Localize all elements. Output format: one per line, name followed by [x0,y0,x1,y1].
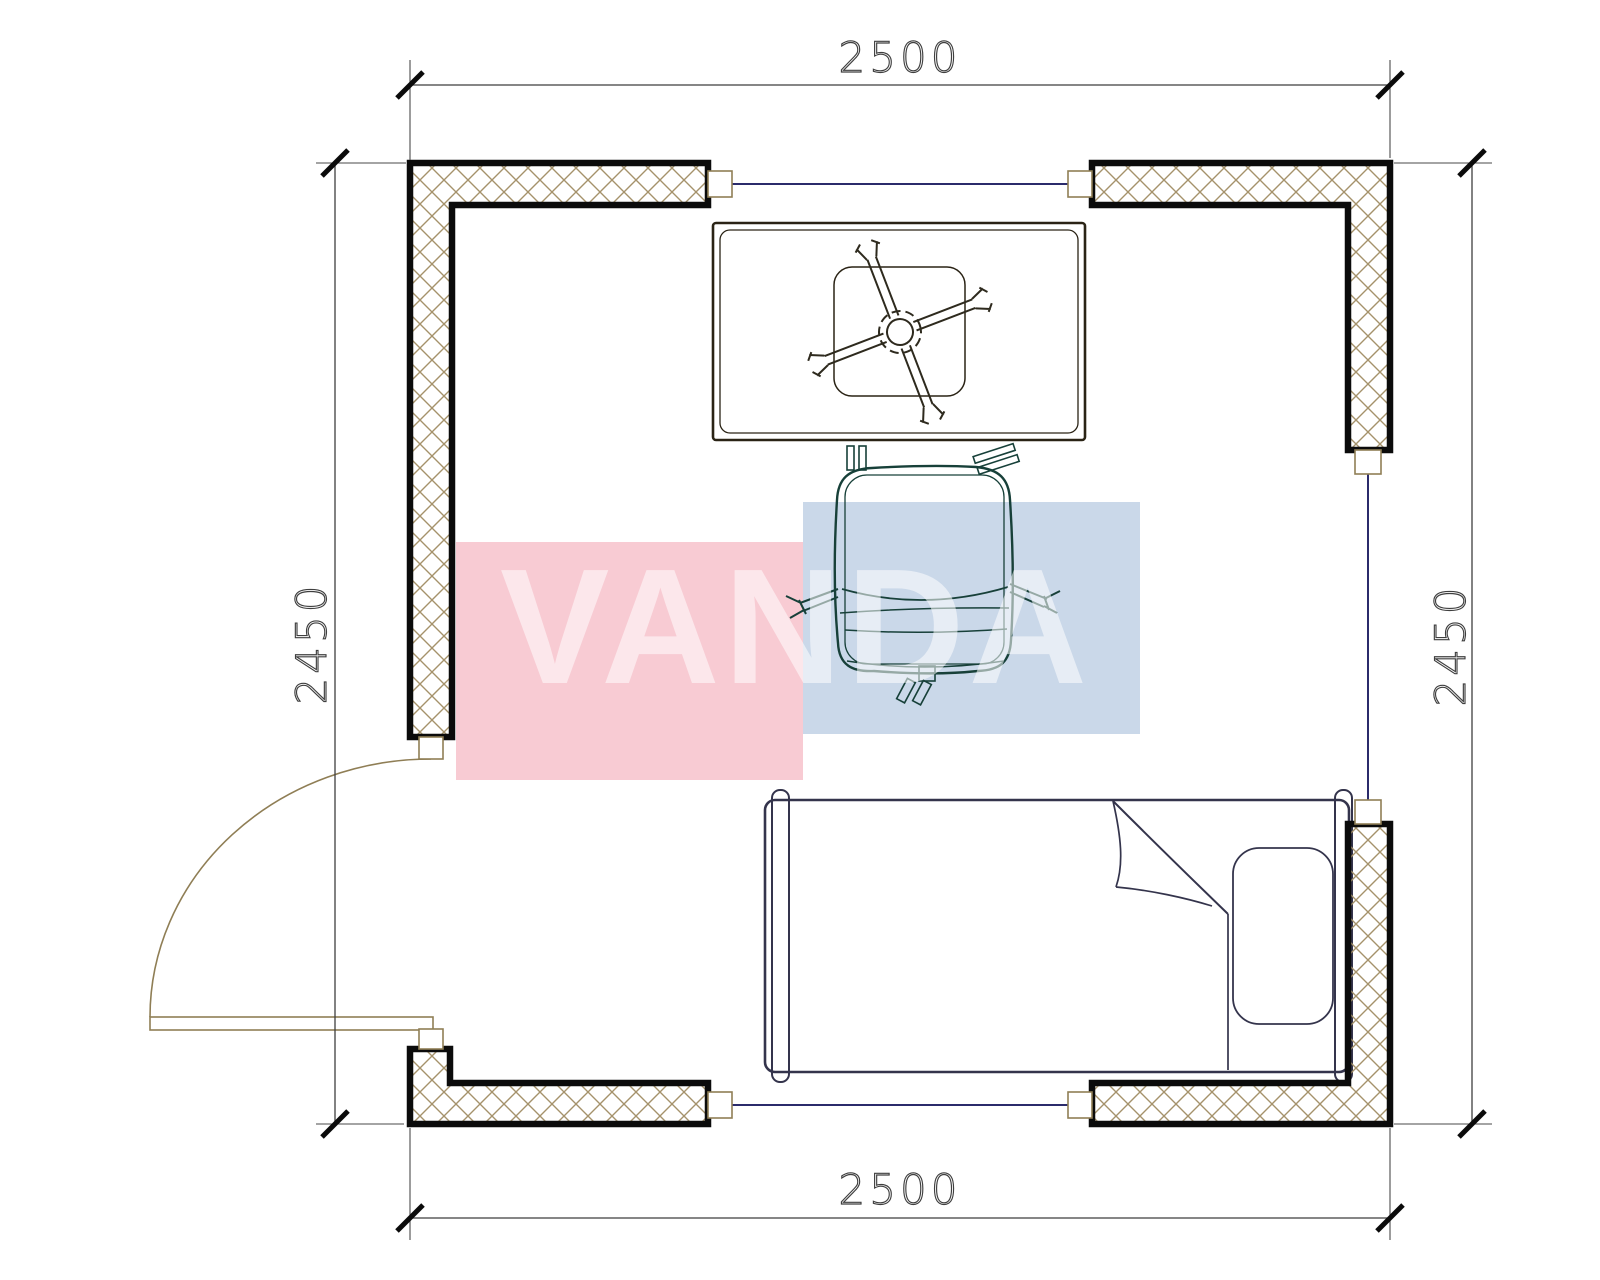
watermark-text: VANDA [500,545,1091,709]
window-bottom-frame-left [708,1092,732,1118]
dimension-label-bottom: 2500 [750,1168,1050,1212]
window-right-frame-top [1355,450,1381,474]
desk-fan-cross [776,208,1024,456]
bed-mattress [765,800,1349,1072]
window-top-frame-left [708,171,732,197]
desk-pad [834,267,965,396]
desk [713,208,1085,456]
dimension-label-top: 2500 [750,36,1050,80]
chair-caster-top-left-2 [859,446,866,470]
window-bottom-frame-right [1068,1092,1092,1118]
fan-hub-ring [873,305,927,359]
window-top-frame-right [1068,171,1092,197]
desk-top [713,223,1085,440]
bed-footboard [772,790,789,1082]
fan-arm-right [910,285,994,338]
floor-plan-canvas: 2500 2500 2450 2450 VANDA [0,0,1600,1280]
bed-pillow [1233,848,1333,1024]
fan-hub [883,315,917,349]
fan-arm-up [853,238,906,322]
fan-arm-down [894,342,947,426]
chair-caster-top-right-1 [973,444,1015,464]
chair-caster-top-left-1 [847,446,854,470]
bed-blanket-fold-diagonal [1113,801,1228,914]
wall-top-right [1092,163,1390,450]
wall-bottom-right [1092,824,1390,1124]
desk-inner-edge [720,230,1078,433]
fan-arm-left [806,326,890,379]
bed [765,790,1352,1082]
door-leaf [150,1017,433,1030]
dimension-label-right: 2450 [1429,495,1473,795]
door-jamb-top [419,737,443,759]
dimension-label-left: 2450 [290,493,334,793]
door-swing-arc [150,759,431,1017]
window-right-frame-bottom [1355,800,1381,824]
door-jamb-bottom [419,1029,443,1049]
chair-caster-top-right-2 [977,455,1019,475]
wall-bottom-left [410,1049,708,1124]
